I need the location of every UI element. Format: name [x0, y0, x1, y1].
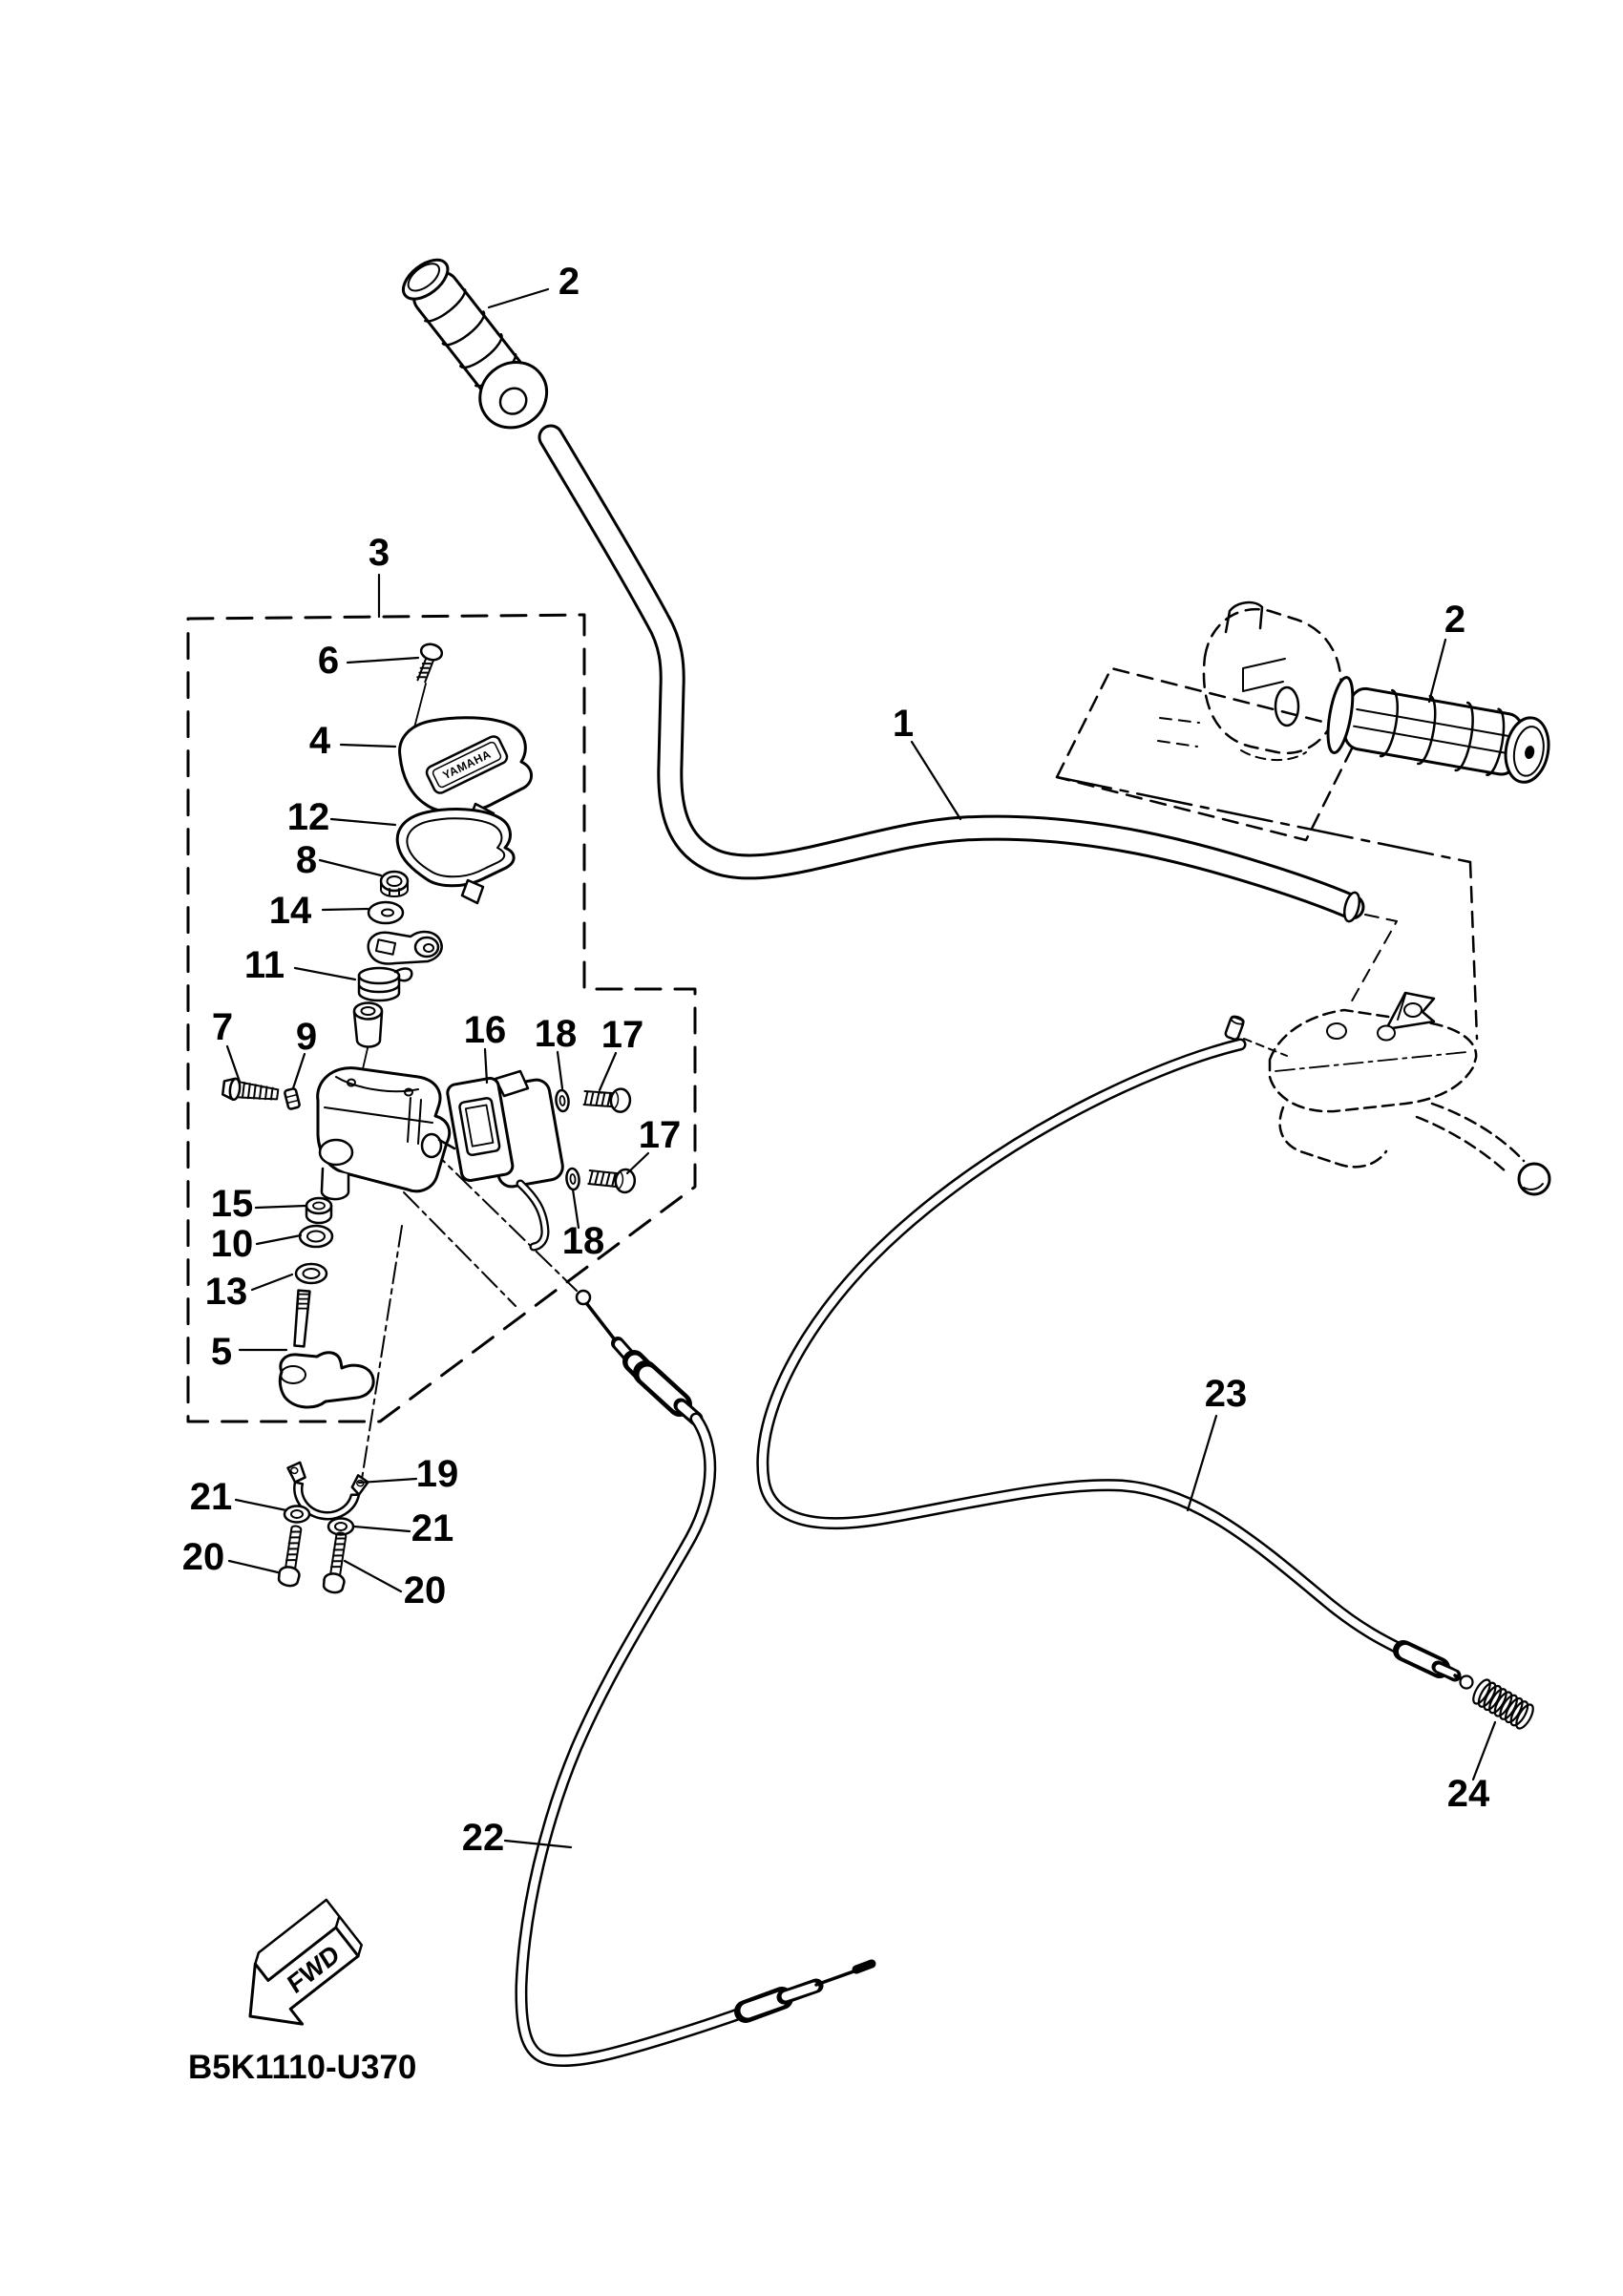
callout-24: 24: [1447, 1773, 1490, 1815]
callout-11: 11: [244, 944, 285, 986]
leader-line: [257, 1235, 301, 1244]
callout-7: 7: [212, 1006, 233, 1048]
steering-handle-cable-diagram: YAMAHA: [0, 0, 1623, 2296]
thumb-lever-5: [280, 1291, 373, 1407]
pin-9: [285, 1088, 300, 1109]
screw-17a: [583, 1086, 631, 1112]
washer-18b: [565, 1168, 580, 1190]
leader-line: [341, 745, 395, 747]
leader-line: [912, 742, 960, 819]
screw-20a: [278, 1525, 308, 1588]
screw-17b: [588, 1166, 636, 1193]
drawing-code: B5K1110-U370: [188, 2049, 416, 2086]
leader-line: [1473, 1722, 1495, 1780]
leader-line: [354, 1527, 410, 1531]
leader-line: [1429, 640, 1445, 702]
cable-end-barrel: [1225, 1015, 1245, 1041]
brake-cable-23: [763, 1015, 1473, 1689]
leader-line: [293, 1054, 305, 1088]
callout-21b: 21: [411, 1507, 454, 1549]
throttle-cable-22: [521, 1291, 872, 2061]
callout-22: 22: [462, 1817, 505, 1859]
leader-line: [320, 860, 381, 875]
projection-centerlines: [360, 1148, 577, 1491]
callout-2a: 2: [559, 261, 580, 303]
callout-18a: 18: [535, 1013, 578, 1055]
leader-line: [331, 819, 395, 825]
callout-1: 1: [893, 703, 914, 745]
brake-lever-assembly-reference: [1270, 993, 1549, 1194]
washer-13: [296, 1264, 327, 1283]
leader-line: [236, 1500, 286, 1510]
left-grip: [389, 248, 560, 441]
callout-16: 16: [464, 1009, 507, 1051]
callout-2b: 2: [1444, 599, 1465, 641]
nut-8: [381, 872, 408, 896]
leader-line: [1188, 1416, 1216, 1510]
callouts: 1 2 2 3 4 5 6 7 8 9 10 11 12 13 14 15 16…: [182, 261, 1490, 1859]
throttle-housing-reference: [1057, 602, 1360, 840]
leader-lines: [227, 289, 1495, 1847]
leader-line: [600, 1053, 616, 1090]
callout-17a: 17: [601, 1014, 644, 1056]
callout-20b: 20: [404, 1569, 447, 1611]
leader-line: [558, 1052, 562, 1088]
throttle-arm: [369, 932, 442, 963]
leader-line: [489, 289, 548, 307]
leader-line: [345, 1561, 401, 1591]
callout-18b: 18: [562, 1220, 605, 1262]
parts-diagram-page: YAMAHA: [0, 0, 1623, 2296]
leader-line: [252, 1274, 292, 1290]
leader-line: [627, 1153, 648, 1173]
spring-11: [359, 968, 411, 1001]
leader-line: [348, 658, 418, 663]
leader-line: [227, 1046, 240, 1082]
callout-3: 3: [369, 532, 390, 574]
right-grip: [1323, 676, 1554, 790]
callout-13: 13: [205, 1271, 248, 1313]
throttle-housing-body: [318, 1068, 454, 1199]
leader-line: [256, 1206, 306, 1208]
callout-20a: 20: [182, 1536, 225, 1578]
leader-line: [295, 968, 355, 979]
callout-9: 9: [296, 1016, 317, 1058]
washer-14: [369, 902, 403, 923]
washer-10: [300, 1226, 332, 1247]
callout-6: 6: [318, 640, 339, 682]
callout-23: 23: [1205, 1373, 1248, 1415]
washer-18a: [555, 1089, 569, 1111]
callout-14: 14: [269, 890, 312, 932]
leader-line: [323, 909, 368, 910]
callout-10: 10: [211, 1223, 254, 1265]
callout-19: 19: [416, 1453, 459, 1495]
callout-12: 12: [287, 796, 330, 838]
callout-15: 15: [211, 1183, 254, 1225]
callout-5: 5: [211, 1331, 232, 1373]
gasket-12: [397, 810, 514, 903]
bolt-7: [222, 1077, 279, 1105]
bushing-15: [306, 1198, 331, 1223]
callout-21a: 21: [190, 1476, 233, 1518]
fwd-arrow: FWD: [222, 1900, 377, 2047]
callout-8: 8: [296, 839, 317, 881]
callout-4: 4: [309, 720, 331, 762]
handlebar: [551, 437, 1362, 923]
cable-spring-24: [1470, 1677, 1536, 1731]
leader-line: [229, 1561, 278, 1572]
washer-21a: [285, 1506, 309, 1523]
callout-17b: 17: [639, 1114, 682, 1156]
